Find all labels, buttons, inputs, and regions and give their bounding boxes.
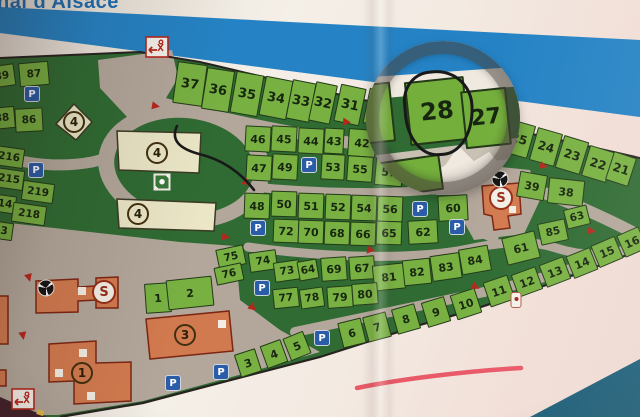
campsite-map-photo: nal d'Alsace [0,0,640,417]
red-underline-annotation [357,368,521,388]
annotations-graphics [0,0,640,417]
pen-line-annotation [175,126,254,190]
